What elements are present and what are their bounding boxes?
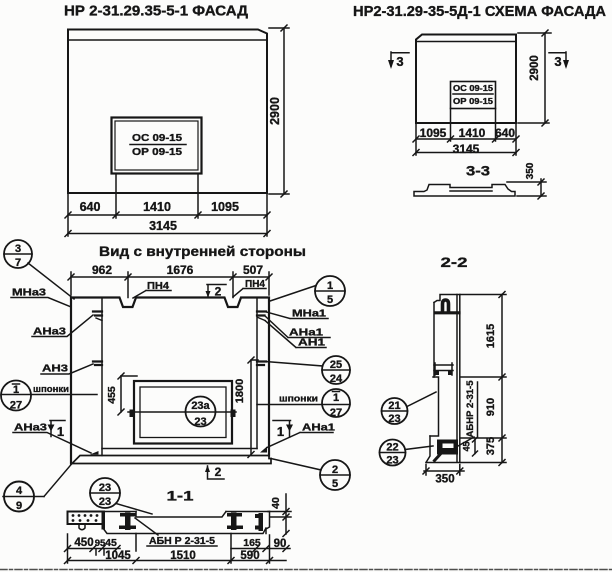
svg-text:640: 640 — [80, 200, 101, 214]
svg-text:590: 590 — [240, 550, 259, 562]
svg-text:450: 450 — [74, 537, 93, 549]
svg-text:9: 9 — [16, 500, 22, 512]
svg-text:23а: 23а — [191, 400, 210, 412]
svg-text:2: 2 — [332, 464, 338, 476]
svg-text:23: 23 — [99, 482, 111, 494]
svg-text:45: 45 — [105, 537, 117, 549]
svg-text:1615: 1615 — [485, 324, 497, 348]
svg-text:5: 5 — [332, 478, 338, 490]
svg-text:1-1: 1-1 — [167, 488, 194, 504]
svg-text:40: 40 — [270, 497, 282, 509]
svg-text:НР2-31.29-35-5Д-1 СХЕМА ФАСАДА: НР2-31.29-35-5Д-1 СХЕМА ФАСАДА — [353, 4, 607, 20]
svg-text:25: 25 — [330, 359, 342, 371]
svg-text:375: 375 — [485, 437, 497, 455]
svg-text:21: 21 — [388, 400, 400, 412]
svg-text:962: 962 — [92, 263, 112, 277]
svg-text:3-3: 3-3 — [466, 163, 490, 179]
svg-text:27: 27 — [330, 407, 342, 419]
svg-text:ОС 09-15: ОС 09-15 — [453, 83, 493, 93]
svg-text:22: 22 — [386, 442, 398, 454]
svg-text:1: 1 — [57, 424, 64, 439]
svg-text:1410: 1410 — [143, 200, 171, 214]
svg-text:шпонки: шпонки — [279, 394, 318, 405]
svg-text:27: 27 — [10, 400, 22, 412]
svg-text:350: 350 — [525, 162, 536, 179]
svg-text:90: 90 — [274, 538, 287, 550]
svg-text:1095: 1095 — [211, 200, 239, 214]
svg-text:2: 2 — [215, 465, 222, 479]
svg-text:3: 3 — [396, 54, 403, 69]
svg-text:1: 1 — [333, 392, 339, 404]
svg-text:1: 1 — [327, 280, 333, 292]
svg-text:1: 1 — [13, 384, 19, 396]
svg-text:ОС 09-15: ОС 09-15 — [132, 133, 183, 144]
svg-text:910: 910 — [485, 398, 497, 416]
svg-text:24: 24 — [330, 373, 343, 385]
svg-text:1045: 1045 — [105, 550, 131, 562]
svg-text:АН3: АН3 — [42, 364, 69, 375]
svg-text:23: 23 — [99, 496, 111, 508]
svg-text:ОР 09-15: ОР 09-15 — [453, 96, 493, 106]
svg-text:507: 507 — [243, 263, 263, 277]
svg-text:23: 23 — [388, 413, 400, 425]
svg-text:3: 3 — [554, 54, 561, 69]
svg-text:1: 1 — [277, 424, 284, 439]
svg-text:640: 640 — [495, 126, 515, 140]
svg-text:АБНР 2-31-5: АБНР 2-31-5 — [465, 380, 476, 438]
svg-text:23: 23 — [386, 455, 398, 467]
svg-text:23: 23 — [194, 416, 206, 428]
svg-text:3145: 3145 — [149, 219, 177, 233]
svg-text:2900: 2900 — [268, 97, 282, 125]
svg-text:2900: 2900 — [529, 55, 541, 81]
svg-text:3145: 3145 — [453, 142, 480, 156]
svg-text:5: 5 — [327, 294, 333, 306]
svg-text:1510: 1510 — [170, 550, 196, 562]
svg-text:1676: 1676 — [167, 263, 194, 277]
svg-text:НР 2-31.29.35-5-1 ФАСАД: НР 2-31.29.35-5-1 ФАСАД — [64, 4, 249, 20]
svg-text:2: 2 — [215, 285, 222, 299]
svg-text:7: 7 — [15, 257, 21, 269]
svg-text:1095: 1095 — [420, 126, 447, 140]
svg-text:Вид с внутренней стороны: Вид с внутренней стороны — [99, 244, 306, 259]
svg-text:165: 165 — [243, 537, 261, 549]
svg-text:2-2: 2-2 — [441, 254, 468, 270]
svg-text:455: 455 — [106, 386, 118, 404]
svg-text:3: 3 — [15, 243, 21, 255]
svg-text:1800: 1800 — [234, 379, 246, 403]
svg-text:1410: 1410 — [459, 126, 486, 140]
svg-text:4: 4 — [16, 485, 23, 497]
svg-text:ОР 09-15: ОР 09-15 — [132, 147, 183, 158]
svg-text:350: 350 — [435, 474, 454, 486]
svg-text:шпонки: шпонки — [33, 384, 69, 395]
